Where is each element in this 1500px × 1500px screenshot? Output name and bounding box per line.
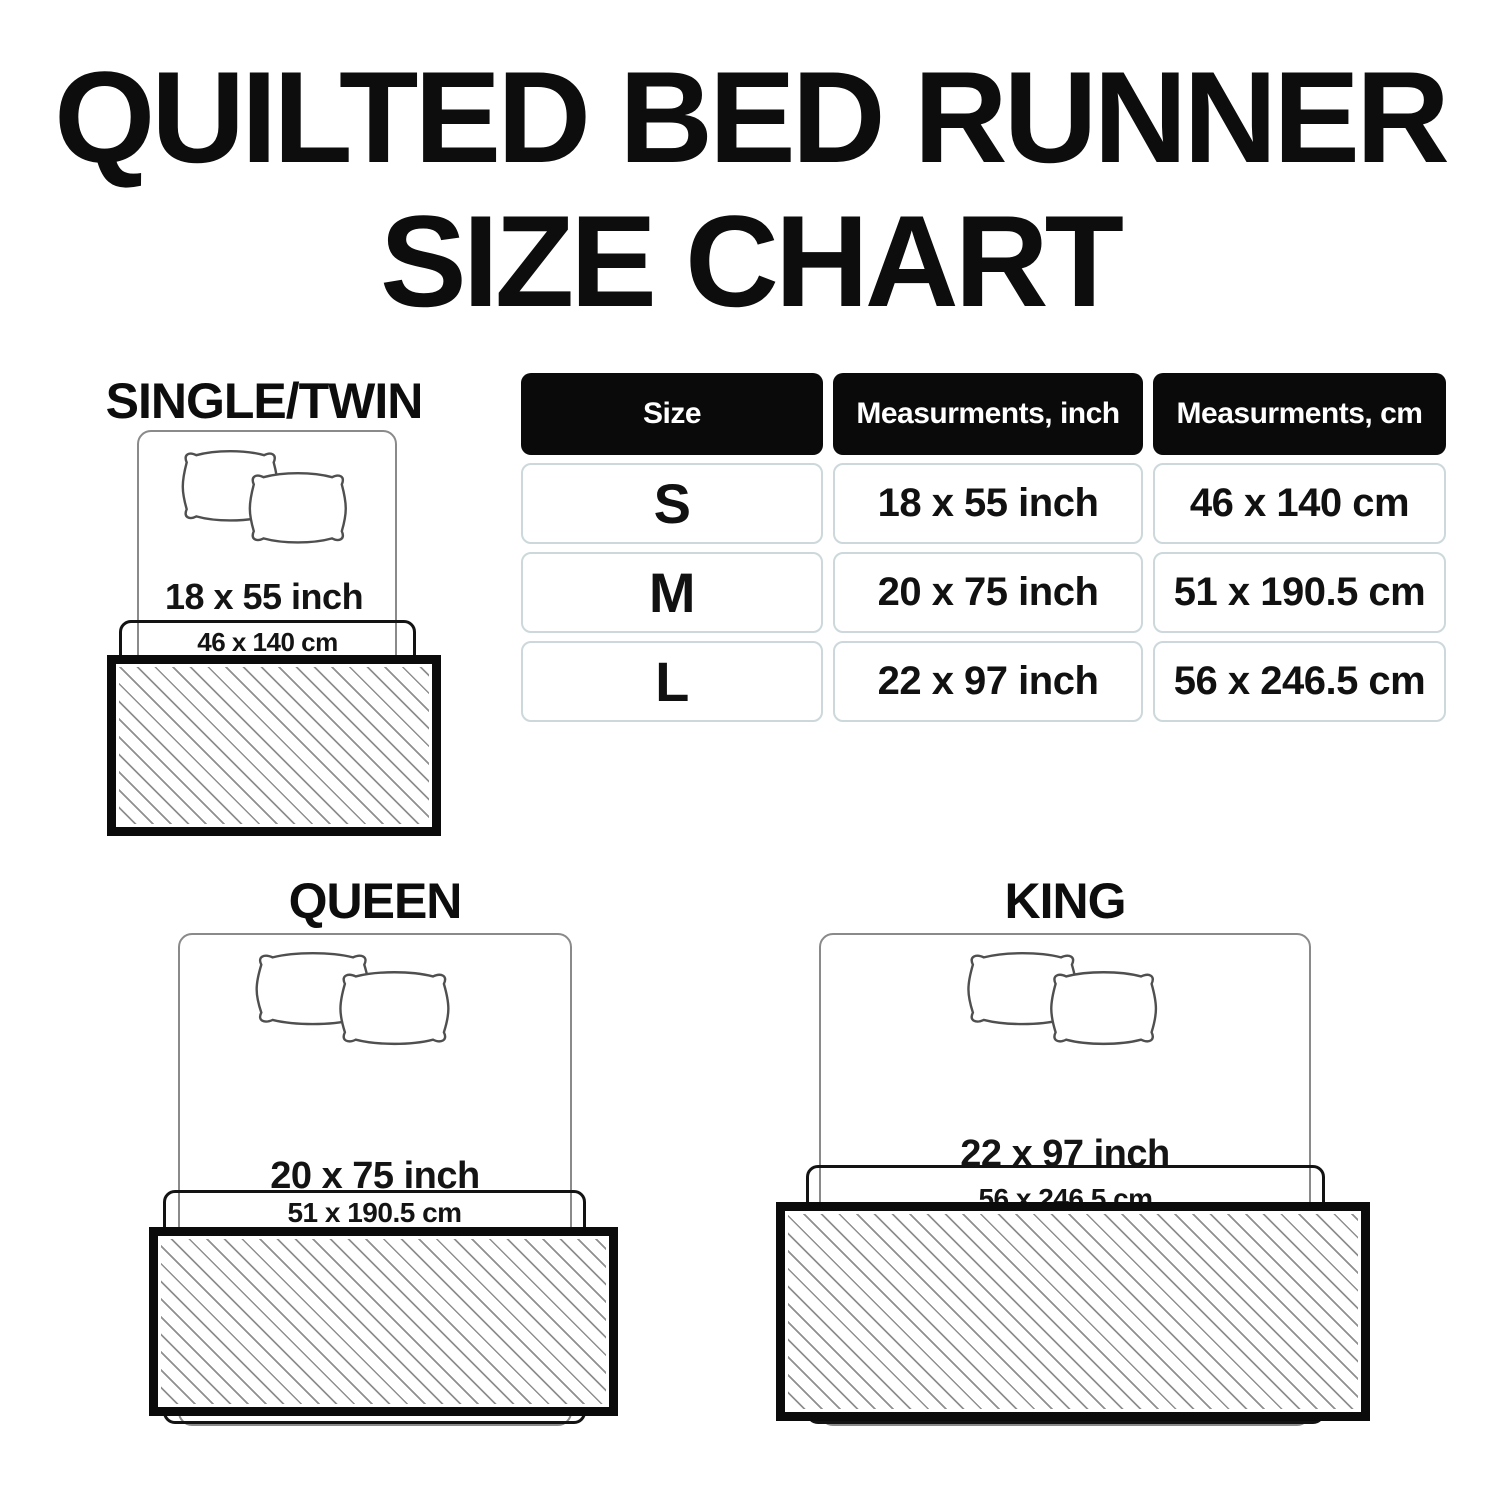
table-header-size: Size [521, 373, 823, 455]
bed-runner-hatched [776, 1202, 1370, 1421]
table-cell-cm: 56 x 246.5 cm [1153, 641, 1446, 722]
size-table: Size Measurments, inch Measurments, cm S… [521, 373, 1446, 722]
table-cell-size: S [521, 463, 823, 544]
table-cell-cm: 46 x 140 cm [1153, 463, 1446, 544]
size-chart-infographic: QUILTED BED RUNNER SIZE CHART SINGLE/TWI… [0, 0, 1500, 1500]
inch-dimension-label: 20 x 75 inch [150, 1155, 600, 1198]
table-header-cm: Measurments, cm [1153, 373, 1446, 455]
diagram-queen: QUEEN 20 x 75 inch 51 x 190.5 cm [150, 872, 600, 1442]
page-title-line-2: SIZE CHART [0, 196, 1500, 326]
diagram-title-single-twin: SINGLE/TWIN [89, 372, 439, 430]
diagram-title-queen: QUEEN [150, 872, 600, 930]
bed-runner-hatched [149, 1227, 618, 1416]
bed-runner-hatched [107, 655, 441, 836]
table-cell-cm: 51 x 190.5 cm [1153, 552, 1446, 633]
cm-dimension-label: 46 x 140 cm [122, 623, 413, 658]
table-cell-inch: 22 x 97 inch [833, 641, 1143, 722]
page-title-line-1: QUILTED BED RUNNER [0, 52, 1500, 182]
inch-dimension-label: 22 x 97 inch [800, 1133, 1330, 1176]
table-cell-inch: 18 x 55 inch [833, 463, 1143, 544]
inch-dimension-label: 18 x 55 inch [89, 576, 439, 618]
table-cell-inch: 20 x 75 inch [833, 552, 1143, 633]
diagram-king: KING 22 x 97 inch 56 x 246.5 cm [800, 872, 1330, 1442]
table-cell-size: L [521, 641, 823, 722]
cm-dimension-label: 51 x 190.5 cm [166, 1193, 583, 1229]
diagram-single-twin: SINGLE/TWIN 18 x 55 inch 46 x 140 cm [89, 372, 439, 842]
diagram-title-king: KING [800, 872, 1330, 930]
table-header-inch: Measurments, inch [833, 373, 1143, 455]
table-cell-size: M [521, 552, 823, 633]
